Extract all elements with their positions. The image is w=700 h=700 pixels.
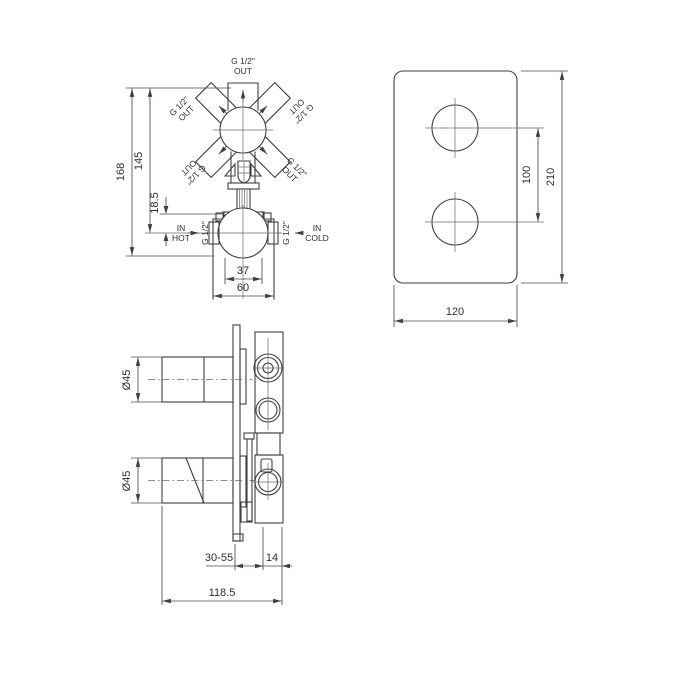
front-view-body [145, 83, 290, 299]
dim-hole-spacing: 100 [521, 166, 533, 184]
thermostatic-valve-drawing: G 1/2" OUT G 1/2" OUT G 1/2" OUT G 1/2" … [0, 0, 700, 700]
svg-text:G 1/2": G 1/2" [281, 221, 291, 245]
svg-text:145: 145 [133, 152, 145, 170]
dim-top-handle-diameter: Ø45 [121, 370, 133, 391]
wall-plate [233, 325, 240, 541]
front-view: G 1/2" OUT G 1/2" OUT G 1/2" OUT G 1/2" … [115, 56, 329, 299]
front-view-dimensions [126, 88, 303, 296]
dim-plate-height: 210 [545, 168, 557, 186]
faceplate-dimensions [394, 71, 568, 327]
dim-bottom-handle-diameter: Ø45 [121, 471, 133, 492]
outlet-lower-left-label: G 1/2" OUT [177, 156, 208, 187]
inlet-hot-size: G 1/2" [200, 221, 210, 245]
technical-drawing-page: G 1/2" OUT G 1/2" OUT G 1/2" OUT G 1/2" … [0, 0, 700, 700]
outlet-lower-right-label: G 1/2" OUT [278, 155, 309, 186]
dim-bracket-width: 60 [237, 282, 249, 294]
faceplate-outline [394, 71, 517, 283]
svg-text:100: 100 [521, 166, 533, 184]
side-view: Ø45 Ø45 30-55 14 118.5 [121, 325, 292, 605]
outlet-upper-left-label: G 1/2" OUT [167, 94, 198, 125]
brand-shield-logo [238, 161, 250, 183]
dim-trim-depth: 14 [266, 552, 278, 564]
svg-text:168: 168 [115, 163, 127, 181]
svg-text:Ø45: Ø45 [121, 370, 133, 391]
wall-plate-foot [233, 534, 243, 541]
svg-text:210: 210 [545, 168, 557, 186]
upper-flange [228, 183, 259, 189]
dim-total-height: 168 [115, 163, 127, 181]
inlet-cold-size: G 1/2" [281, 221, 291, 245]
dim-body-width: 37 [237, 265, 249, 277]
inlet-hot-dir: IN [177, 223, 186, 233]
inlet-cold-dir: IN [313, 223, 322, 233]
side-view-body [148, 325, 283, 541]
svg-text:18.5: 18.5 [149, 192, 161, 213]
dim-wall-depth-range: 30-55 [205, 552, 233, 564]
svg-text:G 1/2": G 1/2" [200, 221, 210, 245]
faceplate-view: 100 210 120 [394, 71, 568, 327]
right-gusset [251, 164, 261, 176]
outlet-top-size: G 1/2" [231, 56, 255, 66]
svg-text:Ø45: Ø45 [121, 471, 133, 492]
dim-plate-width: 120 [446, 306, 464, 318]
dim-offset: 18.5 [149, 192, 161, 213]
inlet-hot-label: HOT [172, 233, 190, 243]
dim-inlet-height: 145 [133, 152, 145, 170]
inlet-cold-label: COLD [305, 233, 329, 243]
left-gusset [225, 164, 235, 176]
dim-total-depth: 118.5 [209, 587, 236, 599]
outlet-top-dir: OUT [234, 66, 252, 76]
